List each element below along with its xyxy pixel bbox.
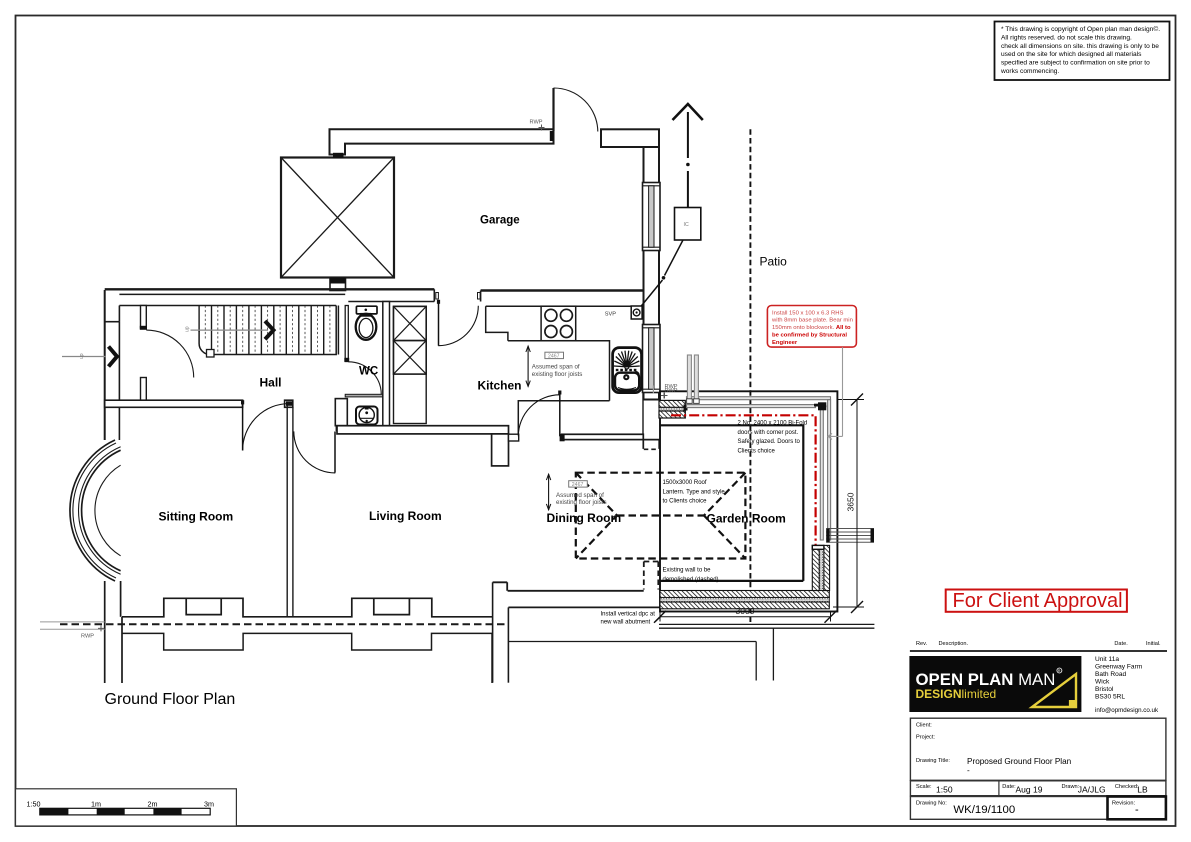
- svg-text:be confirmed by Structural: be confirmed by Structural: [772, 333, 847, 339]
- svg-text:existing floor joists: existing floor joists: [556, 499, 607, 506]
- svg-text:RWP: RWP: [665, 388, 678, 394]
- svg-text:new wall abutment: new wall abutment: [601, 619, 651, 625]
- svg-text:2m: 2m: [148, 800, 158, 809]
- svg-text:1:50: 1:50: [936, 785, 953, 795]
- svg-text:BS30 5RL: BS30 5RL: [1095, 694, 1125, 701]
- svg-text:RWP: RWP: [530, 120, 543, 126]
- svg-text:Greenway Farm: Greenway Farm: [1095, 664, 1143, 671]
- svg-text:doors with corner post.: doors with corner post.: [738, 430, 799, 436]
- svg-text:2 No. 2400 x 2100 Bi-Fold: 2 No. 2400 x 2100 Bi-Fold: [738, 421, 808, 427]
- svg-text:* This drawing is copyright of: * This drawing is copyright of Open plan…: [1001, 25, 1160, 33]
- svg-text:-: -: [1135, 804, 1139, 816]
- svg-text:All rights reserved. do not sc: All rights reserved. do not scale this d…: [1001, 34, 1132, 41]
- svg-text:1500x3000 Roof: 1500x3000 Roof: [663, 480, 707, 486]
- svg-text:DESIGNlimited: DESIGNlimited: [916, 687, 997, 701]
- svg-text:2467: 2467: [572, 482, 584, 488]
- svg-text:Initial.: Initial.: [1146, 641, 1161, 647]
- svg-text:Proposed Ground Floor Plan: Proposed Ground Floor Plan: [967, 757, 1072, 766]
- svg-text:3650: 3650: [846, 492, 856, 511]
- svg-text:WC: WC: [359, 366, 378, 378]
- svg-text:check all dimensions on site.: check all dimensions on site. this drawi…: [1001, 43, 1159, 50]
- svg-text:OPEN PLAN MAN: OPEN PLAN MAN: [916, 670, 1056, 689]
- svg-text:up: up: [185, 326, 191, 332]
- svg-text:Rev.: Rev.: [916, 641, 928, 647]
- svg-text:JA/JLG: JA/JLG: [1078, 785, 1106, 795]
- svg-text:2467: 2467: [548, 353, 560, 359]
- svg-text:Install 150 x 100 x 6.3 RHS: Install 150 x 100 x 6.3 RHS: [772, 310, 843, 316]
- svg-text:to Clients choice: to Clients choice: [663, 499, 708, 505]
- svg-text:Sitting Room: Sitting Room: [159, 510, 234, 524]
- svg-text:Hall: Hall: [260, 376, 282, 390]
- svg-text:R: R: [1058, 669, 1061, 673]
- svg-text:1:50: 1:50: [27, 800, 41, 809]
- svg-text:Client:: Client:: [916, 723, 932, 729]
- svg-text:used on the site for which des: used on the site for which designed all …: [1001, 51, 1142, 58]
- svg-text:Ground Floor Plan: Ground Floor Plan: [105, 691, 236, 708]
- svg-text:Lantern. Type and style: Lantern. Type and style: [663, 489, 726, 495]
- svg-text:Install vertical dpc at: Install vertical dpc at: [601, 612, 656, 618]
- svg-text:Bath Road: Bath Road: [1095, 671, 1126, 678]
- svg-text:Assumed span of: Assumed span of: [556, 492, 604, 499]
- svg-text:existing floor joists: existing floor joists: [532, 371, 583, 378]
- svg-text:SVP: SVP: [605, 312, 616, 318]
- svg-text:demolished (dashed): demolished (dashed): [663, 577, 719, 583]
- svg-text:Scale:: Scale:: [916, 784, 932, 790]
- svg-text:Date.: Date.: [1114, 641, 1128, 647]
- svg-text:1m: 1m: [91, 800, 101, 809]
- svg-text:Engineer: Engineer: [772, 340, 798, 346]
- svg-text:Drawing Title:: Drawing Title:: [916, 758, 950, 764]
- svg-text:Safety glazed. Doors to: Safety glazed. Doors to: [738, 439, 801, 445]
- svg-text:Living Room: Living Room: [369, 509, 442, 523]
- svg-text:Aug 19: Aug 19: [1016, 785, 1043, 795]
- svg-text:info@opmdesign.co.uk: info@opmdesign.co.uk: [1095, 707, 1159, 714]
- svg-text:Revision:: Revision:: [1112, 801, 1135, 807]
- svg-text:Wick: Wick: [1095, 679, 1110, 686]
- svg-text:with 8mm base plate. Bear min: with 8mm base plate. Bear min: [771, 318, 853, 324]
- svg-text:Kitchen: Kitchen: [478, 379, 522, 393]
- svg-text:Drawing No:: Drawing No:: [916, 801, 947, 807]
- svg-text:Unit 11a: Unit 11a: [1095, 656, 1119, 663]
- svg-text:For Client Approval: For Client Approval: [953, 590, 1123, 612]
- svg-text:3000: 3000: [736, 606, 755, 616]
- svg-text:Bristol: Bristol: [1095, 686, 1114, 693]
- svg-text:LB: LB: [1137, 785, 1148, 795]
- svg-text:specified are subject to confi: specified are subject to confirmation on…: [1001, 60, 1150, 67]
- svg-text:Date:: Date:: [1002, 784, 1016, 790]
- svg-text:IC: IC: [684, 222, 689, 228]
- svg-text:3m: 3m: [204, 800, 214, 809]
- svg-text:-: -: [967, 766, 970, 775]
- svg-text:Project:: Project:: [916, 735, 935, 741]
- svg-text:Description.: Description.: [939, 641, 969, 647]
- svg-text:Patio: Patio: [760, 255, 788, 269]
- svg-text:Assumed span of: Assumed span of: [532, 364, 580, 371]
- svg-text:works commencing.: works commencing.: [1000, 68, 1059, 75]
- svg-text:RWP: RWP: [81, 634, 94, 640]
- svg-text:Clients choice: Clients choice: [738, 448, 776, 454]
- svg-text:WK/19/1100: WK/19/1100: [953, 804, 1015, 816]
- svg-text:Existing wall to be: Existing wall to be: [663, 568, 712, 574]
- svg-text:Checked:: Checked:: [1115, 784, 1139, 790]
- svg-text:up: up: [79, 353, 85, 359]
- svg-text:150mm onto blockwork. All to: 150mm onto blockwork. All to: [772, 325, 851, 331]
- svg-text:Garage: Garage: [480, 215, 520, 227]
